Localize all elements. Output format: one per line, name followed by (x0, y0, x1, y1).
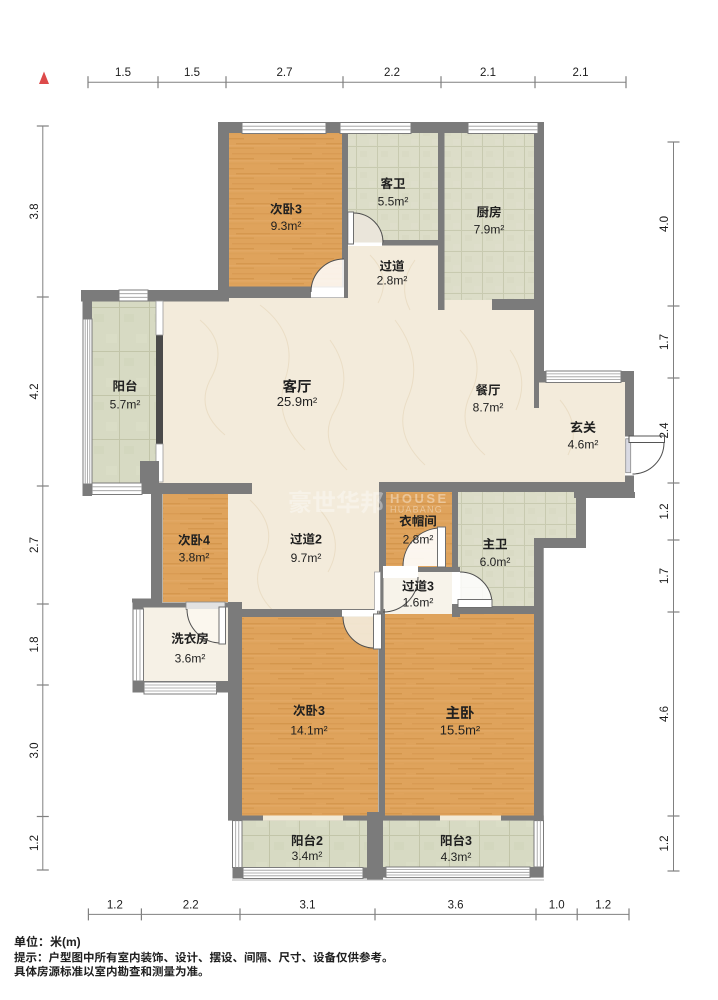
svg-text:2.7: 2.7 (29, 537, 41, 553)
svg-text:2.7: 2.7 (277, 67, 293, 79)
svg-text:14.1m²: 14.1m² (290, 724, 327, 738)
svg-text:2: 2 (316, 834, 323, 848)
svg-text:1.8: 1.8 (29, 637, 41, 653)
svg-text:8.7m²: 8.7m² (473, 401, 504, 415)
svg-text:(m): (m) (62, 935, 81, 949)
svg-text:1.7: 1.7 (659, 334, 671, 350)
svg-text:1.2: 1.2 (659, 836, 671, 852)
svg-text:3.8: 3.8 (29, 204, 41, 220)
svg-text:3.1: 3.1 (300, 900, 316, 912)
svg-text:3.6m²: 3.6m² (175, 652, 206, 666)
svg-text:1.2: 1.2 (595, 900, 611, 912)
svg-text:1.2: 1.2 (29, 835, 41, 851)
svg-text:4.6m²: 4.6m² (568, 438, 599, 452)
svg-text:5.7m²: 5.7m² (110, 398, 141, 412)
svg-text:2.8m²: 2.8m² (403, 533, 434, 547)
svg-text:2.8m²: 2.8m² (377, 274, 408, 288)
svg-text:1.7: 1.7 (659, 568, 671, 584)
svg-text:2.1: 2.1 (573, 67, 589, 79)
svg-text:2.2: 2.2 (384, 67, 400, 79)
svg-text:4.3m²: 4.3m² (441, 850, 472, 864)
svg-text:1.0: 1.0 (549, 900, 565, 912)
svg-text:3.0: 3.0 (29, 743, 41, 759)
svg-text:2.1: 2.1 (480, 67, 496, 79)
svg-text:1.2: 1.2 (107, 900, 123, 912)
svg-text:4: 4 (203, 534, 210, 548)
svg-text:3: 3 (318, 704, 325, 718)
svg-text:3.6: 3.6 (448, 900, 464, 912)
svg-text:HUABANG: HUABANG (390, 505, 443, 515)
svg-text:3.4m²: 3.4m² (292, 849, 323, 863)
svg-text:3: 3 (427, 580, 434, 594)
svg-text:25.9m²: 25.9m² (277, 394, 318, 409)
svg-text:5.5m²: 5.5m² (378, 195, 409, 209)
svg-text:1.5: 1.5 (184, 67, 200, 79)
svg-text:4.2: 4.2 (29, 384, 41, 400)
svg-text:4.6: 4.6 (659, 706, 671, 722)
svg-text:2.2: 2.2 (183, 900, 199, 912)
svg-text:1.5: 1.5 (115, 67, 131, 79)
svg-text:2: 2 (315, 533, 322, 547)
svg-text:9.7m²: 9.7m² (291, 551, 322, 565)
svg-text:6.0m²: 6.0m² (480, 555, 511, 569)
svg-text:9.3m²: 9.3m² (271, 219, 302, 233)
svg-text:3: 3 (295, 203, 302, 217)
svg-text:1.2: 1.2 (659, 504, 671, 520)
svg-text:3: 3 (465, 834, 472, 848)
svg-text:15.5m²: 15.5m² (440, 723, 481, 738)
svg-text:7.9m²: 7.9m² (474, 223, 505, 237)
svg-text:2.4: 2.4 (659, 422, 671, 439)
svg-text:4.0: 4.0 (659, 216, 671, 232)
svg-text:3.8m²: 3.8m² (179, 551, 210, 565)
svg-text:1.6m²: 1.6m² (403, 596, 434, 610)
